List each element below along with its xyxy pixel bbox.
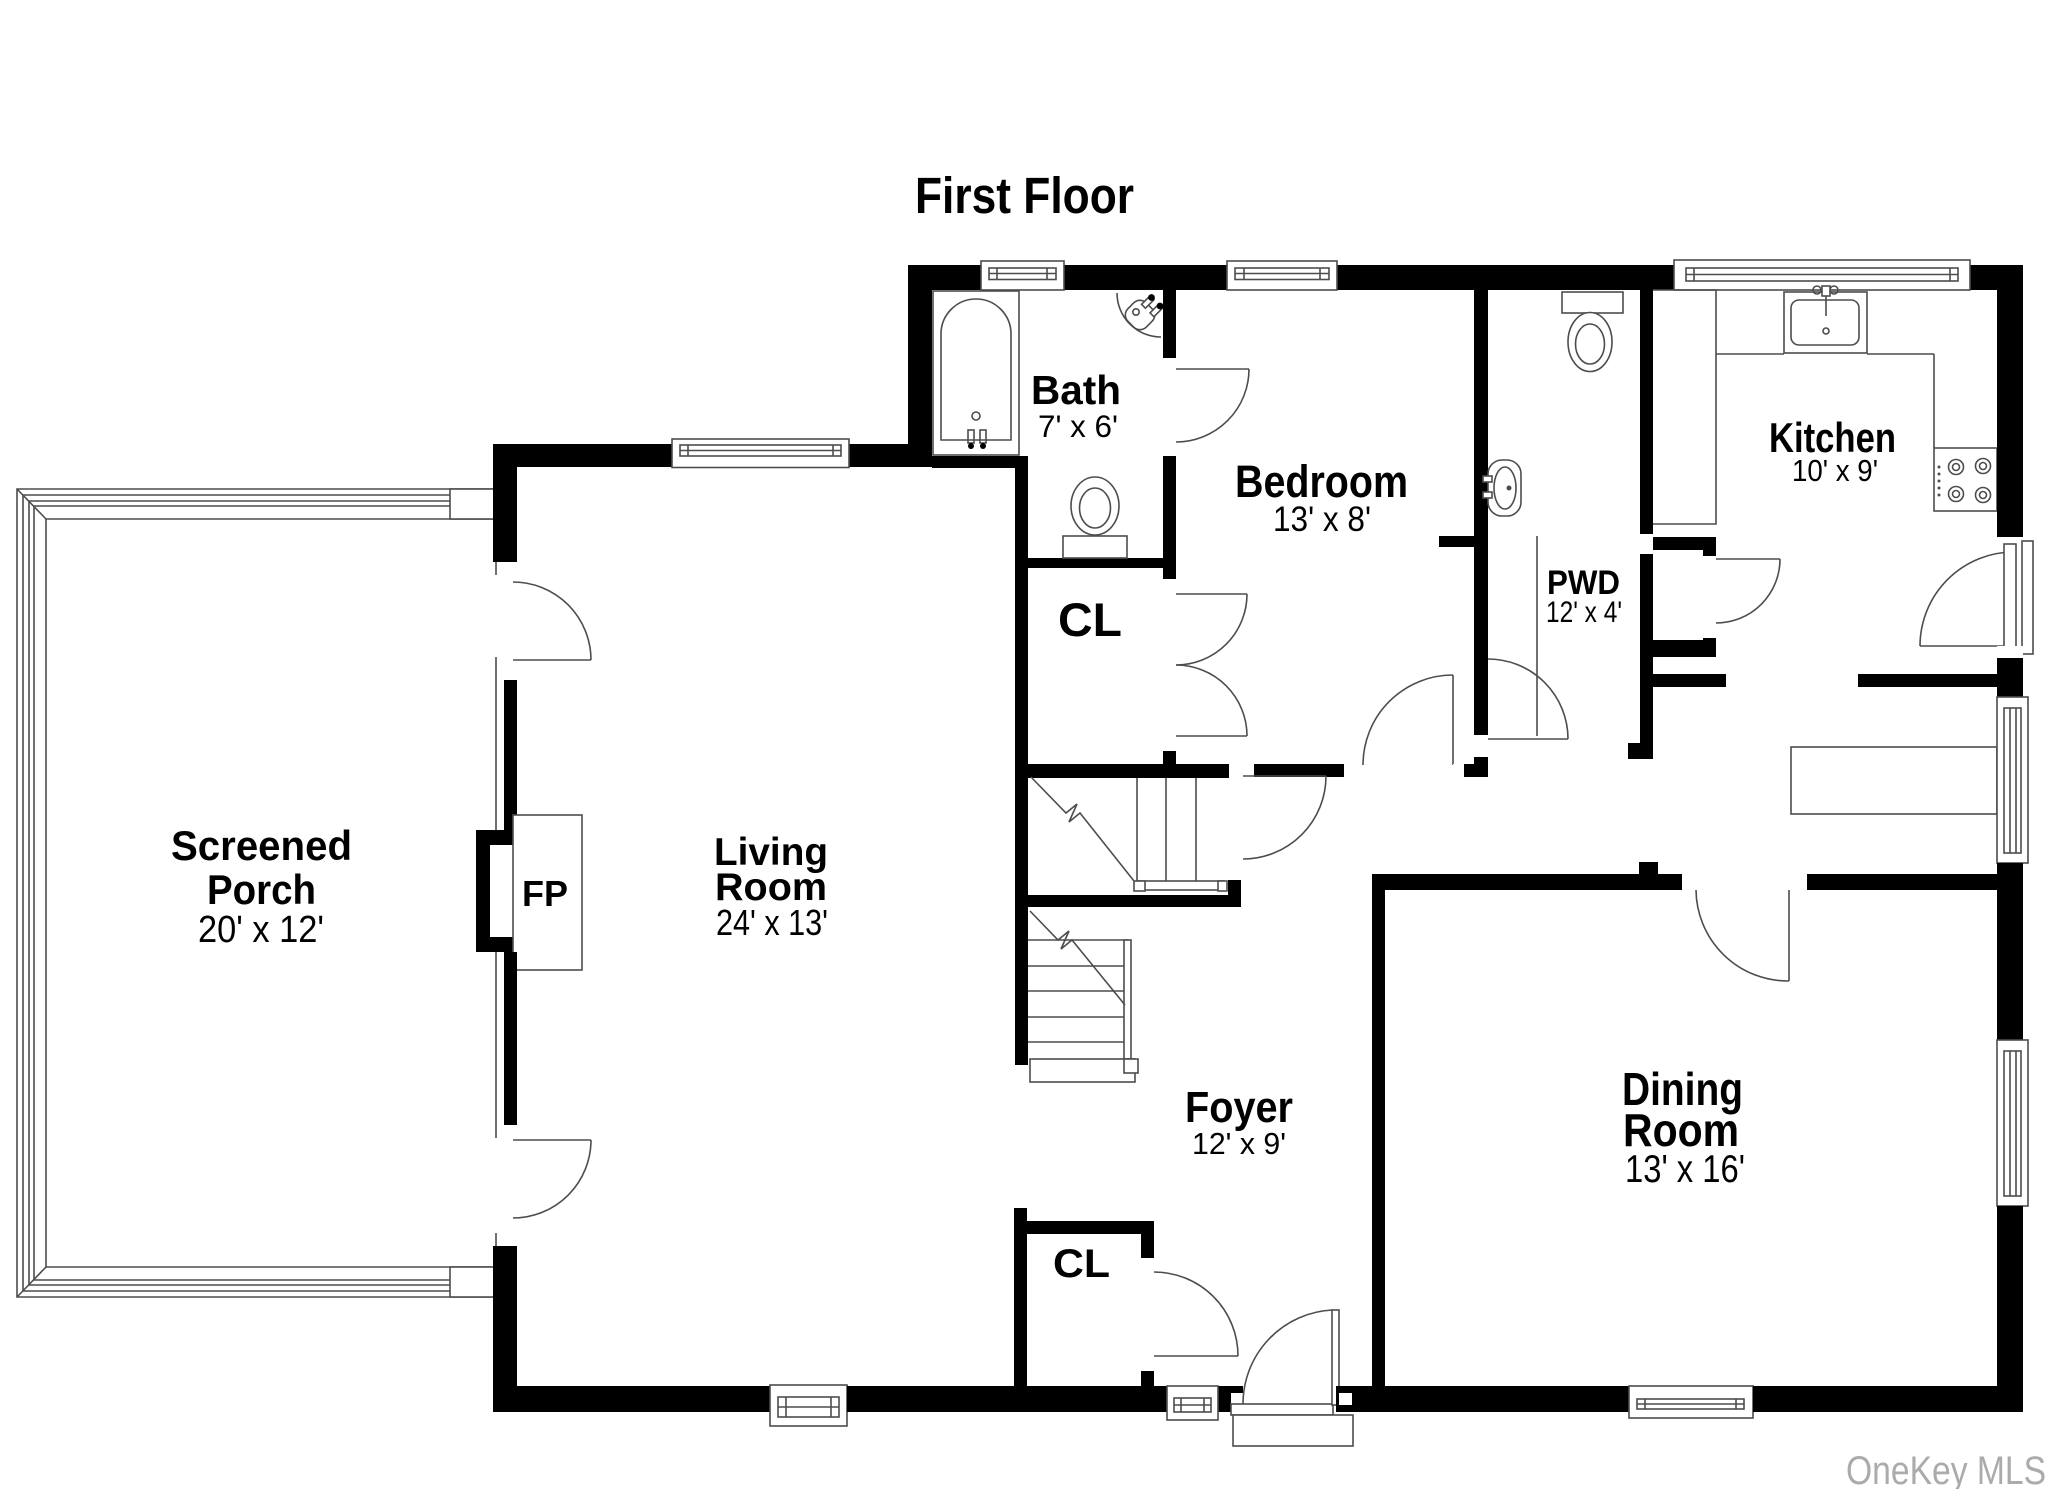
svg-text:First Floor: First Floor xyxy=(915,167,1134,224)
svg-text:12' x 9': 12' x 9' xyxy=(1192,1126,1286,1161)
svg-text:24' x 13': 24' x 13' xyxy=(716,902,828,943)
svg-text:12' x 4': 12' x 4' xyxy=(1546,596,1622,629)
svg-text:Bath: Bath xyxy=(1031,367,1121,413)
svg-text:10' x 9': 10' x 9' xyxy=(1792,453,1878,488)
svg-text:CL: CL xyxy=(1058,593,1122,646)
svg-text:Porch: Porch xyxy=(207,866,316,913)
svg-text:FP: FP xyxy=(522,873,568,914)
svg-text:13' x 8': 13' x 8' xyxy=(1273,500,1371,539)
svg-text:OneKey MLS: OneKey MLS xyxy=(1846,1449,2046,1489)
svg-text:13' x 16': 13' x 16' xyxy=(1625,1148,1745,1191)
svg-text:20' x 12': 20' x 12' xyxy=(198,909,324,951)
svg-text:7' x 6': 7' x 6' xyxy=(1038,408,1118,444)
svg-text:Screened: Screened xyxy=(171,822,352,869)
svg-text:Foyer: Foyer xyxy=(1185,1083,1293,1132)
svg-text:CL: CL xyxy=(1053,1242,1110,1286)
